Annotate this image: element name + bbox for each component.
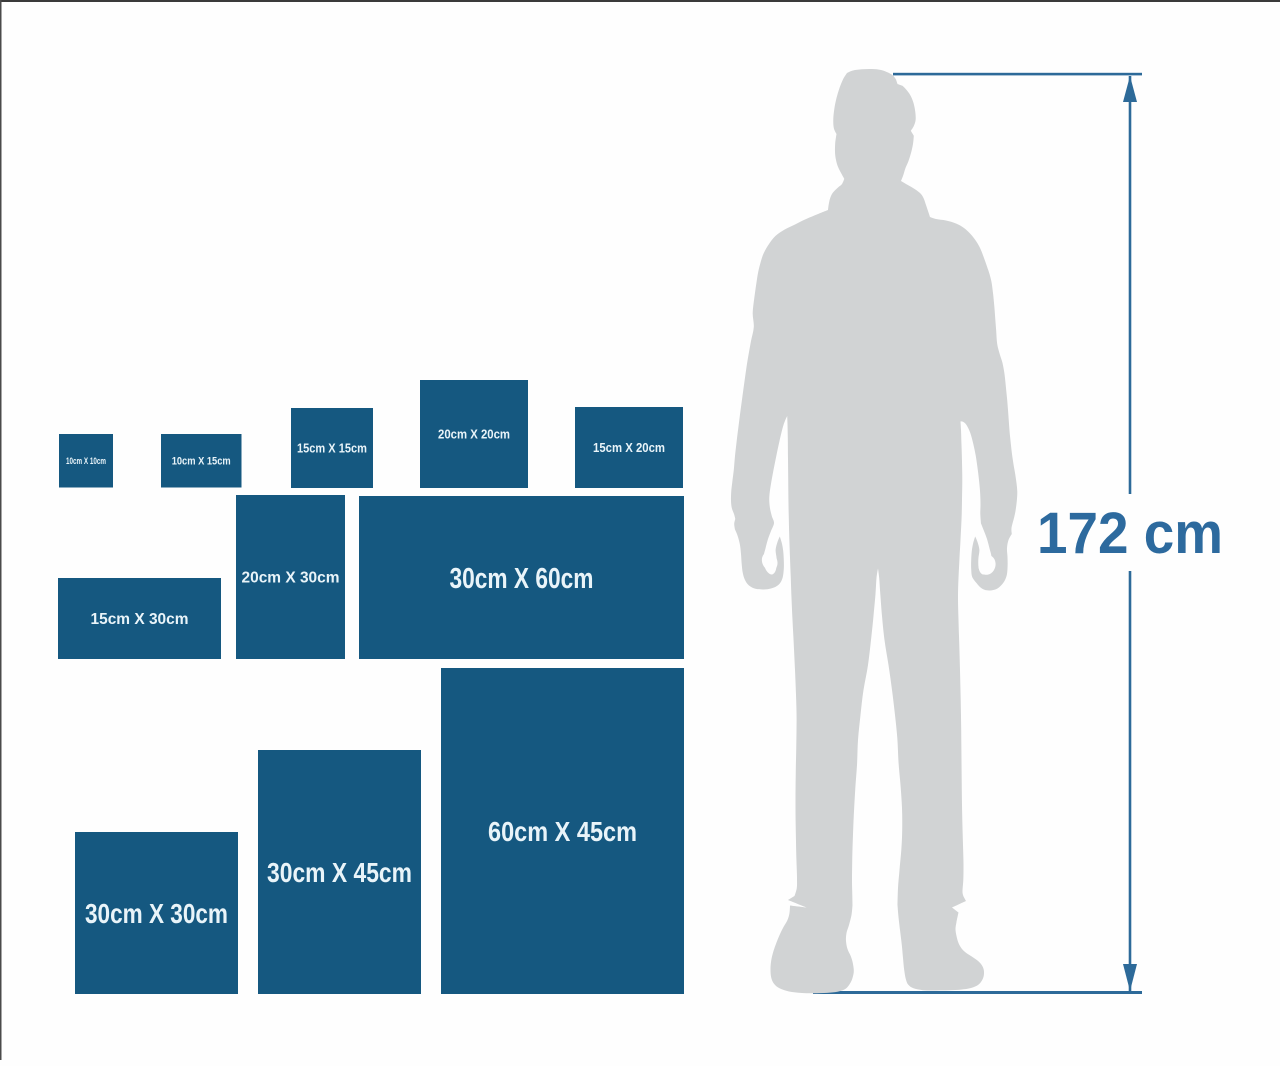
svg-text:15cm X 20cm: 15cm X 20cm	[593, 440, 665, 455]
svg-text:172 cm: 172 cm	[1037, 501, 1223, 566]
svg-text:20cm X 30cm: 20cm X 30cm	[242, 570, 340, 587]
svg-text:15cm X 30cm: 15cm X 30cm	[91, 611, 189, 628]
svg-text:15cm X 15cm: 15cm X 15cm	[297, 441, 367, 456]
svg-text:30cm X 60cm: 30cm X 60cm	[450, 563, 594, 595]
svg-text:10cm X 15cm: 10cm X 15cm	[172, 456, 231, 468]
svg-text:30cm X 45cm: 30cm X 45cm	[267, 857, 412, 888]
svg-text:10cm X 10cm: 10cm X 10cm	[66, 456, 106, 466]
svg-text:30cm X 30cm: 30cm X 30cm	[85, 898, 228, 929]
svg-text:60cm X 45cm: 60cm X 45cm	[488, 816, 637, 847]
svg-text:20cm X 20cm: 20cm X 20cm	[438, 427, 510, 442]
